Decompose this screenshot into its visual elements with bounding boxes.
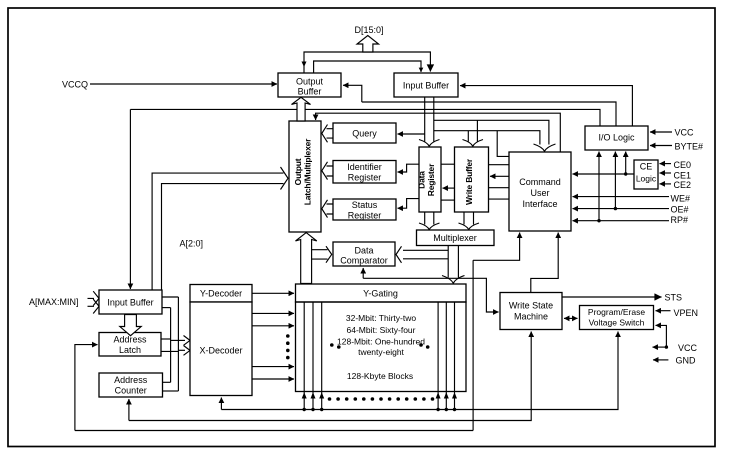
- svg-text:Buffer: Buffer: [298, 87, 322, 97]
- svg-text:Voltage Switch: Voltage Switch: [589, 317, 645, 327]
- svg-text:Latch/Multiplexer: Latch/Multiplexer: [303, 138, 313, 205]
- svg-text:Program/Erase: Program/Erase: [588, 307, 645, 317]
- svg-text:Identifier: Identifier: [347, 162, 382, 172]
- svg-text:Output: Output: [293, 158, 303, 185]
- svg-text:Y-Gating: Y-Gating: [363, 288, 398, 298]
- svg-text:Command: Command: [519, 177, 561, 187]
- svg-text:A[MAX:MIN]: A[MAX:MIN]: [29, 297, 79, 307]
- svg-text:Input Buffer: Input Buffer: [107, 298, 153, 308]
- svg-text:Machine: Machine: [514, 312, 548, 322]
- svg-text:Register: Register: [348, 210, 382, 220]
- svg-text:128-Kbyte Blocks: 128-Kbyte Blocks: [347, 371, 413, 381]
- svg-text:D[15:0]: D[15:0]: [354, 25, 383, 35]
- svg-text:CE: CE: [640, 162, 653, 172]
- svg-text:Counter: Counter: [115, 385, 147, 395]
- svg-text:BYTE#: BYTE#: [675, 142, 704, 152]
- svg-text:VCCQ: VCCQ: [62, 80, 88, 90]
- svg-text:128-Mbit: One-hundred: 128-Mbit: One-hundred: [337, 337, 425, 347]
- svg-text:Comparator: Comparator: [340, 256, 388, 266]
- svg-text:VCC: VCC: [678, 343, 698, 353]
- svg-text:OE#: OE#: [671, 205, 689, 215]
- svg-text:Multiplexer: Multiplexer: [433, 233, 477, 243]
- svg-text:Interface: Interface: [522, 199, 557, 209]
- svg-text:VCC: VCC: [675, 128, 695, 138]
- svg-text:A[2:0]: A[2:0]: [180, 239, 204, 249]
- svg-text:Register: Register: [348, 172, 382, 182]
- svg-text:64-Mbit: Sixty-four: 64-Mbit: Sixty-four: [347, 325, 416, 335]
- svg-text:Output: Output: [296, 77, 324, 87]
- svg-text:CE2: CE2: [674, 180, 692, 190]
- svg-text:Write State: Write State: [509, 301, 553, 311]
- svg-text:I/O Logic: I/O Logic: [598, 133, 635, 143]
- svg-text:Write Buffer: Write Buffer: [464, 158, 474, 205]
- svg-text:User: User: [530, 188, 549, 198]
- svg-text:twenty-eight: twenty-eight: [358, 347, 404, 357]
- svg-text:VPEN: VPEN: [674, 308, 699, 318]
- svg-text:RP#: RP#: [671, 215, 689, 225]
- svg-text:Data: Data: [354, 246, 373, 256]
- svg-text:Latch: Latch: [119, 345, 141, 355]
- svg-text:Y-Decoder: Y-Decoder: [200, 289, 242, 299]
- svg-text:WE#: WE#: [671, 194, 691, 204]
- svg-text:Logic: Logic: [636, 174, 657, 184]
- svg-text:Register: Register: [426, 163, 436, 196]
- svg-text:Address: Address: [114, 375, 148, 385]
- svg-text:X-Decoder: X-Decoder: [199, 346, 242, 356]
- svg-text:STS: STS: [665, 293, 683, 303]
- svg-text:32-Mbit: Thirty-two: 32-Mbit: Thirty-two: [346, 313, 416, 323]
- svg-text:Status: Status: [352, 200, 378, 210]
- svg-text:Query: Query: [352, 129, 377, 139]
- svg-text:CE0: CE0: [674, 160, 692, 170]
- svg-text:CE1: CE1: [674, 171, 692, 181]
- svg-text:GND: GND: [676, 356, 697, 366]
- svg-text:Input Buffer: Input Buffer: [403, 81, 449, 91]
